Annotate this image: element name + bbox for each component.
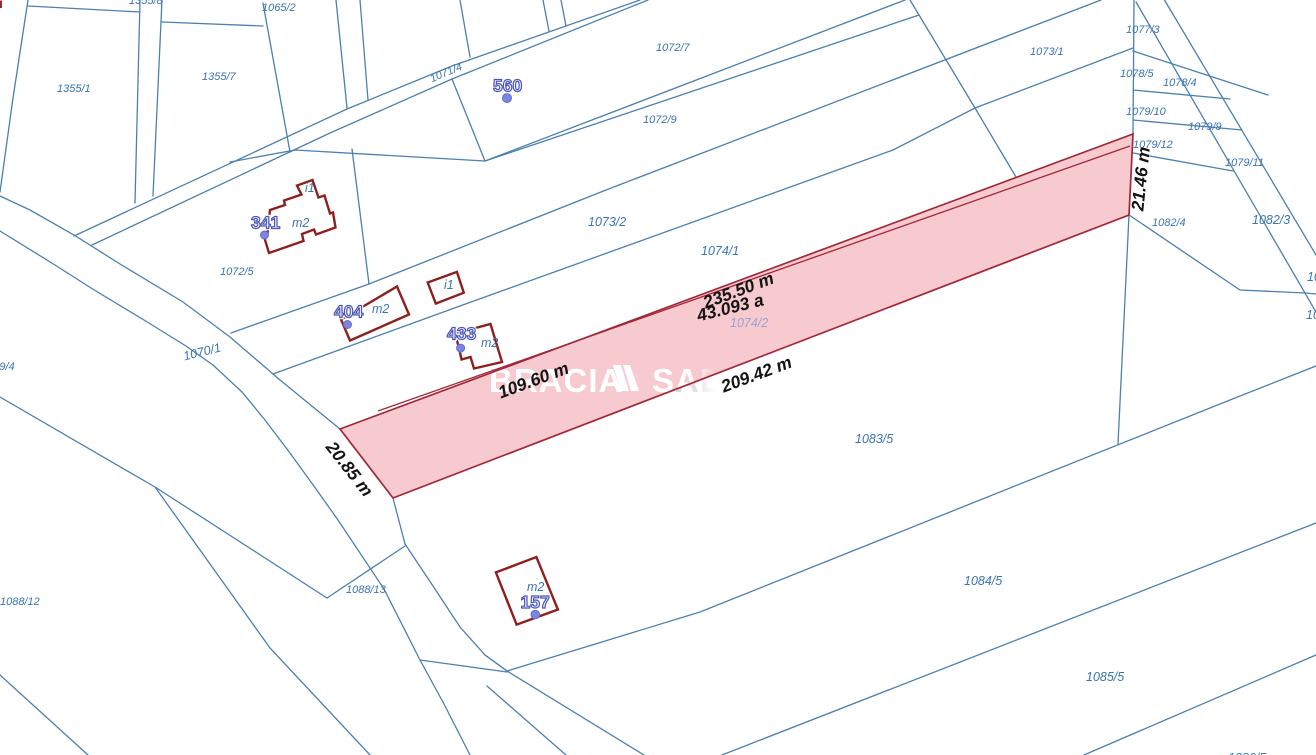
svg-text:1069/4: 1069/4	[0, 361, 15, 373]
svg-text:1084/5: 1084/5	[964, 574, 1002, 588]
svg-text:1072/5: 1072/5	[220, 266, 255, 278]
svg-text:1086/5: 1086/5	[1228, 751, 1266, 755]
svg-text:341: 341	[251, 213, 280, 233]
svg-text:m2: m2	[527, 580, 544, 594]
svg-text:1065/2: 1065/2	[262, 2, 296, 14]
svg-text:m2: m2	[372, 302, 389, 316]
svg-text:108: 108	[1306, 308, 1316, 322]
svg-text:1355/8: 1355/8	[129, 0, 164, 7]
svg-text:1085/5: 1085/5	[1086, 670, 1124, 684]
svg-text:1082/3: 1082/3	[1252, 213, 1290, 227]
svg-text:1074/1: 1074/1	[701, 244, 739, 258]
svg-text:1355/1: 1355/1	[57, 83, 91, 95]
svg-text:i1: i1	[305, 181, 315, 195]
svg-text:1088/13: 1088/13	[346, 584, 387, 596]
svg-text:m2: m2	[292, 216, 309, 230]
svg-text:1079/10: 1079/10	[1126, 106, 1167, 118]
svg-text:157: 157	[521, 592, 550, 612]
svg-text:1074/2: 1074/2	[730, 316, 768, 330]
svg-text:1073/1: 1073/1	[1030, 46, 1064, 58]
svg-text:404: 404	[334, 302, 363, 322]
svg-text:1088/12: 1088/12	[0, 596, 40, 608]
svg-text:108: 108	[1307, 270, 1316, 284]
svg-text:560: 560	[493, 76, 522, 96]
svg-text:1355/7: 1355/7	[202, 71, 237, 83]
svg-text:m2: m2	[481, 336, 498, 350]
svg-text:i1: i1	[444, 278, 454, 292]
svg-text:1078/4: 1078/4	[1163, 77, 1197, 89]
svg-text:1083/5: 1083/5	[855, 432, 893, 446]
svg-text:1079/11: 1079/11	[1225, 157, 1264, 169]
svg-text:1078/5: 1078/5	[1120, 68, 1155, 80]
svg-text:1072/9: 1072/9	[643, 114, 677, 126]
svg-text:1082/4: 1082/4	[1152, 217, 1186, 229]
svg-text:1079/9: 1079/9	[1188, 121, 1222, 133]
svg-text:1072/7: 1072/7	[656, 42, 691, 54]
svg-text:1073/2: 1073/2	[588, 215, 626, 229]
svg-text:433: 433	[447, 324, 476, 344]
svg-text:1077/3: 1077/3	[1126, 24, 1161, 36]
